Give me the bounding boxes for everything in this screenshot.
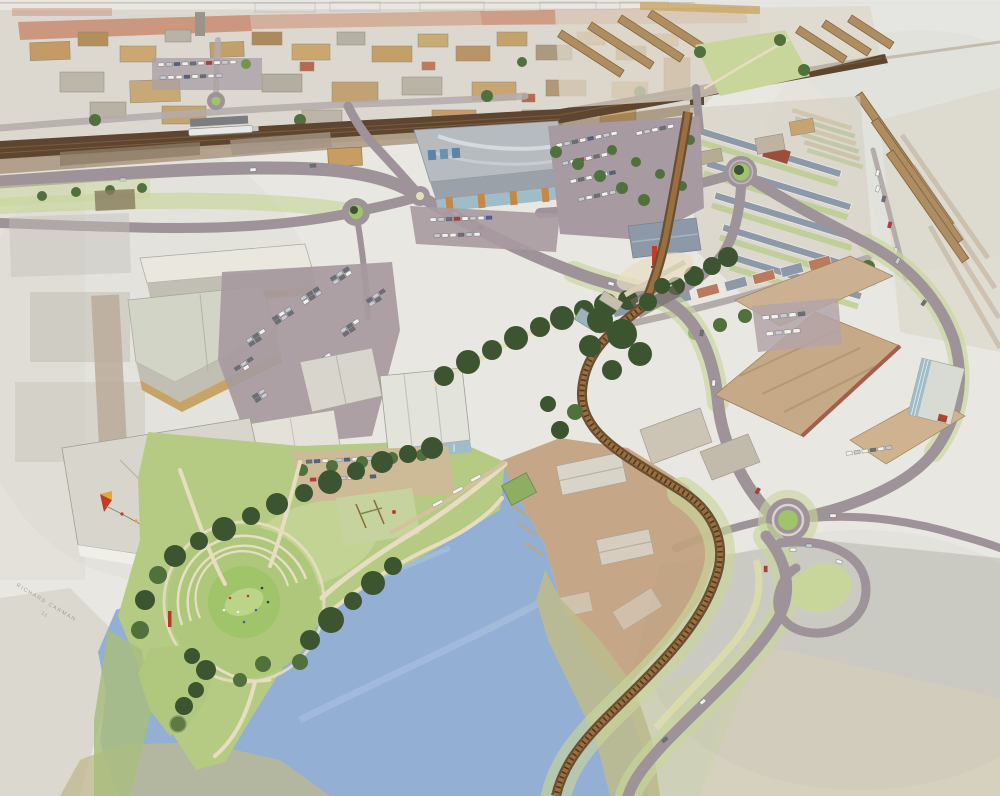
church-tower: [195, 12, 205, 36]
plaza-east-car-park: [752, 298, 842, 352]
painting-canvas: RICHARD CARMAN '11: [0, 0, 1000, 796]
red-obelisk: [168, 611, 172, 627]
roundabout-north: [725, 156, 757, 188]
roundabout-west: [342, 198, 370, 226]
town-mini-roundabout: [212, 97, 221, 106]
bandstand-circle: [170, 716, 186, 732]
roundabout-station: [410, 186, 430, 206]
small-dark-shed: [95, 189, 136, 211]
watercolour-masterplan-painting: RICHARD CARMAN '11: [0, 0, 1000, 796]
